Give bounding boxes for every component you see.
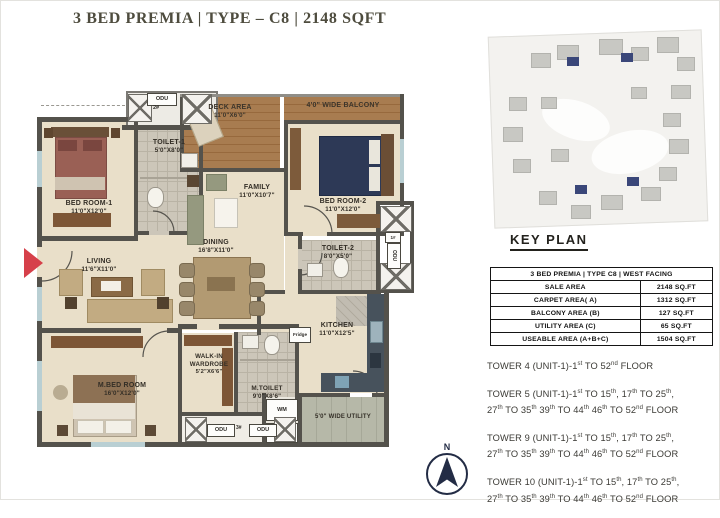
f	[369, 167, 380, 191]
tr: UTILITY AREA (C)65 SQ.FT	[491, 320, 713, 333]
xbox	[274, 417, 296, 442]
odu3-left-label: ODU	[207, 424, 235, 437]
span: , 17	[622, 478, 638, 488]
keyplan-building	[631, 47, 649, 61]
rdim: 11'0"X12'5"	[305, 330, 369, 338]
keyplan-building	[513, 159, 531, 173]
span: TOWER 10 (UNIT-1)-1	[487, 478, 583, 488]
compass-needle	[436, 457, 458, 487]
div: DECK AREA	[197, 103, 263, 112]
f	[207, 277, 235, 291]
keyplan-building	[669, 139, 689, 154]
tower-entry: TOWER 4 (UNIT-1)-1st TO 52nd FLOOR	[487, 357, 720, 373]
keyplan-highlight-building	[567, 57, 579, 66]
f	[242, 335, 259, 349]
tr: SALE AREA2148 SQ.FT	[491, 281, 713, 294]
keyplan-building	[509, 97, 527, 111]
span: TO 52	[582, 361, 611, 371]
room-label-deck: DECK AREA11'0"X6'0"	[197, 103, 263, 120]
rdim: 5'0"X8'0"	[140, 147, 198, 155]
span: 39	[537, 449, 550, 459]
room-label-bedroom2: BED ROOM-211'0"X12'0"	[307, 197, 379, 214]
f	[370, 321, 383, 343]
f	[57, 425, 68, 436]
room-label-utility: 5'0" WIDE UTILITY	[303, 414, 383, 422]
keyplan-map	[479, 27, 717, 229]
f	[249, 282, 265, 297]
keyplan-building	[671, 85, 691, 99]
td: 1504 SQ.FT	[640, 333, 712, 346]
room-label-family: FAMILY11'0"X10'7"	[226, 183, 288, 200]
span: TO 52	[607, 494, 636, 504]
f	[240, 359, 295, 361]
span: TO 44	[555, 494, 584, 504]
span: TO 44	[555, 405, 584, 415]
span: 27	[487, 494, 498, 504]
span: TO 44	[555, 449, 584, 459]
f	[264, 335, 280, 355]
keyplan-building	[599, 39, 623, 55]
tower-line: 27th TO 35th 39th TO 44th 46th TO 52nd F…	[487, 401, 720, 417]
rdim: 11'6"X11'0"	[63, 266, 135, 274]
keyplan-building	[531, 53, 551, 68]
span: TO 35	[503, 405, 532, 415]
keyplan-building	[551, 149, 569, 162]
rdim: 16'8"X11'0"	[187, 247, 245, 255]
f	[187, 175, 199, 187]
f	[83, 140, 102, 151]
div: BED ROOM-1	[49, 199, 129, 208]
f	[141, 269, 165, 296]
td: SALE AREA	[491, 281, 641, 294]
div: DINING	[187, 238, 245, 247]
f	[206, 174, 227, 191]
keyplan-building	[659, 167, 677, 181]
span: TO 35	[503, 494, 532, 504]
f	[381, 134, 394, 196]
span: 46	[589, 449, 602, 459]
keyplan-building	[571, 205, 591, 219]
keyplan-building	[641, 187, 661, 201]
div: TOILET-1	[140, 138, 198, 147]
span: 27	[487, 405, 498, 415]
span: 39	[537, 405, 550, 415]
f	[55, 177, 105, 190]
page: { "title": "3 BED PREMIA | TYPE – C8 | 2…	[0, 0, 720, 500]
room-label-mbedroom: M.BED ROOM16'0"X12'0"	[83, 381, 161, 398]
keyplan-building	[631, 87, 647, 99]
span: TO 52	[607, 405, 636, 415]
span: , 17	[616, 433, 632, 443]
f	[249, 301, 265, 316]
tower-line: TOWER 4 (UNIT-1)-1st TO 52nd FLOOR	[487, 357, 720, 373]
span: ,	[671, 433, 674, 443]
f	[51, 127, 109, 137]
f	[51, 336, 143, 348]
path	[153, 211, 174, 232]
td: USEABLE AREA (A+B+C)	[491, 333, 641, 346]
div: 5'0" WIDE UTILITY	[303, 414, 383, 422]
span: TO 25	[637, 389, 666, 399]
odu3-right-label: ODU	[249, 424, 277, 437]
f	[335, 376, 349, 388]
f	[184, 335, 232, 346]
div: M.TOILET	[239, 385, 295, 393]
rdim: 11'0"X6'0"	[197, 112, 263, 120]
span: TOWER 4 (UNIT-1)-1	[487, 361, 577, 371]
tr: USEABLE AREA (A+B+C)1504 SQ.FT	[491, 333, 713, 346]
xbox	[185, 417, 207, 442]
f	[214, 198, 238, 228]
rdim: 11'0"X12'0"	[49, 208, 129, 216]
f	[181, 153, 198, 168]
span: 39	[537, 494, 550, 504]
span: TO 52	[607, 449, 636, 459]
room-label-kitchen: KITCHEN11'0"X12'5"	[305, 321, 369, 338]
tower-line: TOWER 9 (UNIT-1)-1st TO 15th, 17th TO 25…	[487, 429, 720, 445]
td: BALCONY AREA (B)	[491, 307, 641, 320]
f	[53, 385, 68, 400]
area-table: 3 BED PREMIA | TYPE C8 | WEST FACING SAL…	[490, 267, 713, 346]
div: WALK-IN WARDROBE	[185, 353, 233, 369]
f	[179, 263, 195, 278]
odu1-label: ODU	[387, 243, 401, 269]
keyplan-building	[539, 191, 557, 205]
compass-north-label: N	[444, 442, 451, 452]
td: UTILITY AREA (C)	[491, 320, 641, 333]
tower-info: TOWER 4 (UNIT-1)-1st TO 52nd FLOORTOWER …	[487, 357, 720, 518]
keyplan-highlight-building	[627, 177, 639, 186]
keyplan-building	[657, 37, 679, 53]
span: FLOOR	[643, 405, 678, 415]
span: FLOOR	[643, 449, 678, 459]
tower-entry: TOWER 5 (UNIT-1)-1st TO 15th, 17th TO 25…	[487, 385, 720, 417]
span: TO 35	[503, 449, 532, 459]
keyplan-building	[503, 127, 523, 142]
rdim: 5'2"X6'6"	[185, 369, 233, 377]
span: TO 15	[582, 389, 611, 399]
div: BED ROOM-2	[307, 197, 379, 206]
tbody: 3 BED PREMIA | TYPE C8 | WEST FACING SAL…	[491, 268, 713, 346]
f	[145, 425, 156, 436]
span: TO 25	[643, 478, 672, 488]
f	[370, 353, 381, 368]
f	[249, 263, 265, 278]
span: 27	[487, 449, 498, 459]
div: KITCHEN	[305, 321, 369, 330]
td: 127 SQ.FT	[640, 307, 712, 320]
span: TO 15	[582, 433, 611, 443]
xbox	[380, 206, 412, 232]
f	[179, 301, 195, 316]
rdim: 11'0"X12'0"	[307, 206, 379, 214]
div: TOILET-2	[307, 244, 369, 253]
room-label-toilet2: TOILET-28'0"X5'0"	[307, 244, 369, 261]
f	[77, 420, 104, 434]
td: CARPET AREA( A)	[491, 294, 641, 307]
room-label-living: LIVING11'6"X11'0"	[63, 257, 135, 274]
keyplan-highlight-building	[575, 185, 587, 194]
span: 46	[589, 494, 602, 504]
div: 4'0" WIDE BALCONY	[293, 101, 393, 110]
room-label-mtoilet: M.TOILET9'0"X8'6"	[239, 385, 295, 401]
f	[307, 263, 323, 277]
sup: nd	[611, 361, 618, 367]
tr: 3 BED PREMIA | TYPE C8 | WEST FACING	[491, 268, 713, 281]
keyplan-building	[663, 113, 681, 127]
room-label-wardrobe: WALK-IN WARDROBE5'2"X6'6"	[185, 353, 233, 377]
div: M.BED ROOM	[83, 381, 161, 390]
f	[111, 128, 120, 138]
odu3-num: 3#	[236, 425, 242, 431]
keyplan-building	[677, 57, 695, 71]
room-label-dining: DINING16'8"X11'0"	[187, 238, 245, 255]
room-label-toilet1: TOILET-15'0"X8'0"	[140, 138, 198, 155]
rdim: 11'0"X10'7"	[226, 192, 288, 200]
keyplan-building	[601, 195, 623, 210]
keyplan-highlight-building	[621, 53, 633, 62]
span: , 17	[616, 389, 632, 399]
tr: CARPET AREA( A)1312 SQ.FT	[491, 294, 713, 307]
span: FLOOR	[618, 361, 653, 371]
room-label-bedroom1: BED ROOM-111'0"X12'0"	[49, 199, 129, 216]
div: FAMILY	[226, 183, 288, 192]
f	[147, 187, 164, 208]
room-label-balcony: 4'0" WIDE BALCONY	[293, 101, 393, 110]
area-table-header: 3 BED PREMIA | TYPE C8 | WEST FACING	[491, 268, 713, 281]
span: ,	[671, 389, 674, 399]
span: TOWER 9 (UNIT-1)-1	[487, 433, 577, 443]
tr: BALCONY AREA (B)127 SQ.FT	[491, 307, 713, 320]
span: TO 15	[588, 478, 617, 488]
odu2-label: ODU	[147, 93, 177, 106]
rdim: 9'0"X8'6"	[239, 393, 295, 401]
keyplan-building	[541, 97, 557, 109]
f	[367, 294, 384, 392]
compass-icon: N	[418, 437, 476, 499]
div: LIVING	[63, 257, 135, 266]
tower-line: TOWER 10 (UNIT-1)-1st TO 15th, 17th TO 2…	[487, 473, 720, 489]
span: TOWER 5 (UNIT-1)-1	[487, 389, 577, 399]
td: 2148 SQ.FT	[640, 281, 712, 294]
span: FLOOR	[643, 494, 678, 504]
tower-entry: TOWER 10 (UNIT-1)-1st TO 15th, 17th TO 2…	[487, 473, 720, 505]
path	[143, 331, 169, 357]
f	[73, 403, 135, 419]
tower-line: 27th TO 35th 39th TO 44th 46th TO 52nd F…	[487, 445, 720, 461]
span: 46	[589, 405, 602, 415]
keyplan-title: KEY PLAN	[510, 232, 588, 251]
span: ,	[677, 478, 680, 488]
f	[157, 297, 169, 309]
f	[58, 140, 77, 151]
odu2-num: 2#	[153, 105, 159, 111]
td: 65 SQ.FT	[640, 320, 712, 333]
f	[101, 281, 121, 291]
td: 1312 SQ.FT	[640, 294, 712, 307]
f	[105, 420, 132, 434]
rdim: 8'0"X5'0"	[307, 253, 369, 261]
f	[179, 282, 195, 297]
f	[369, 140, 380, 164]
tower-line: TOWER 5 (UNIT-1)-1st TO 15th, 17th TO 25…	[487, 385, 720, 401]
tower-line: 27th TO 35th 39th TO 44th 46th TO 52nd F…	[487, 490, 720, 506]
odu1-num: 1#	[385, 232, 401, 243]
f	[290, 128, 301, 190]
tower-entry: TOWER 9 (UNIT-1)-1st TO 15th, 17th TO 25…	[487, 429, 720, 461]
f	[65, 297, 77, 309]
span: TO 25	[637, 433, 666, 443]
rdim: 16'0"X12'0"	[83, 390, 161, 398]
f	[44, 128, 53, 138]
